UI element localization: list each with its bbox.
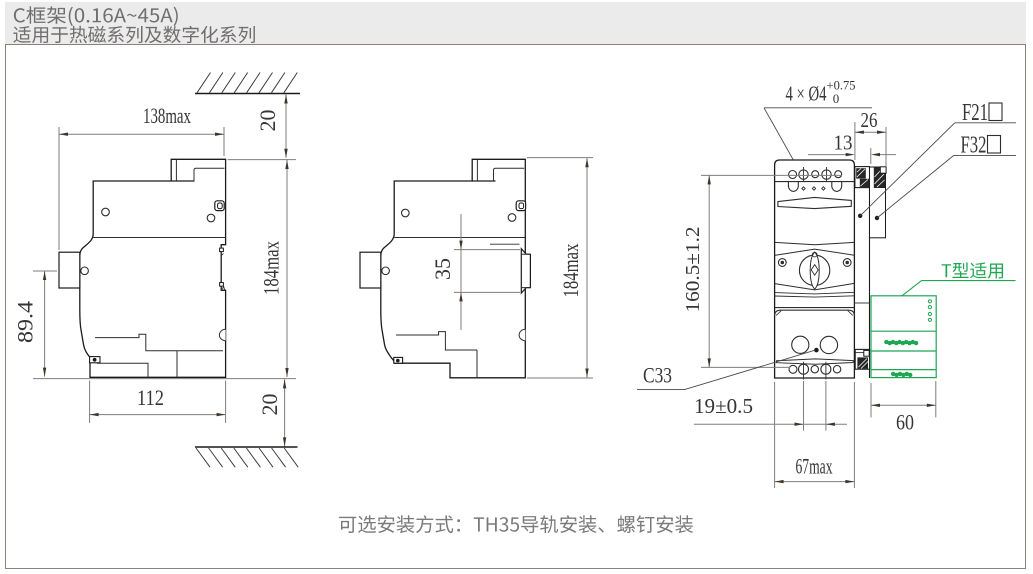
- svg-text:4 × Ø4: 4 × Ø4: [786, 82, 827, 106]
- svg-text:138max: 138max: [143, 103, 191, 128]
- svg-text:F21: F21: [962, 100, 988, 126]
- svg-text:184max: 184max: [259, 241, 284, 295]
- svg-text:+0.75: +0.75: [827, 78, 856, 93]
- svg-text:26: 26: [861, 108, 878, 132]
- svg-text:19±0.5: 19±0.5: [694, 394, 753, 418]
- svg-text:20: 20: [255, 110, 280, 132]
- svg-text:184max: 184max: [558, 244, 583, 298]
- svg-text:C33: C33: [643, 363, 672, 388]
- svg-text:F32: F32: [961, 133, 987, 159]
- svg-text:112: 112: [137, 385, 164, 410]
- svg-text:0: 0: [833, 91, 840, 106]
- svg-text:60: 60: [896, 410, 914, 435]
- svg-text:13: 13: [834, 131, 853, 155]
- svg-text:67max: 67max: [796, 454, 833, 479]
- svg-text:160.5±1.2: 160.5±1.2: [682, 227, 704, 313]
- svg-text:20: 20: [257, 394, 282, 416]
- svg-text:89.4: 89.4: [12, 301, 37, 343]
- svg-text:35: 35: [430, 258, 455, 280]
